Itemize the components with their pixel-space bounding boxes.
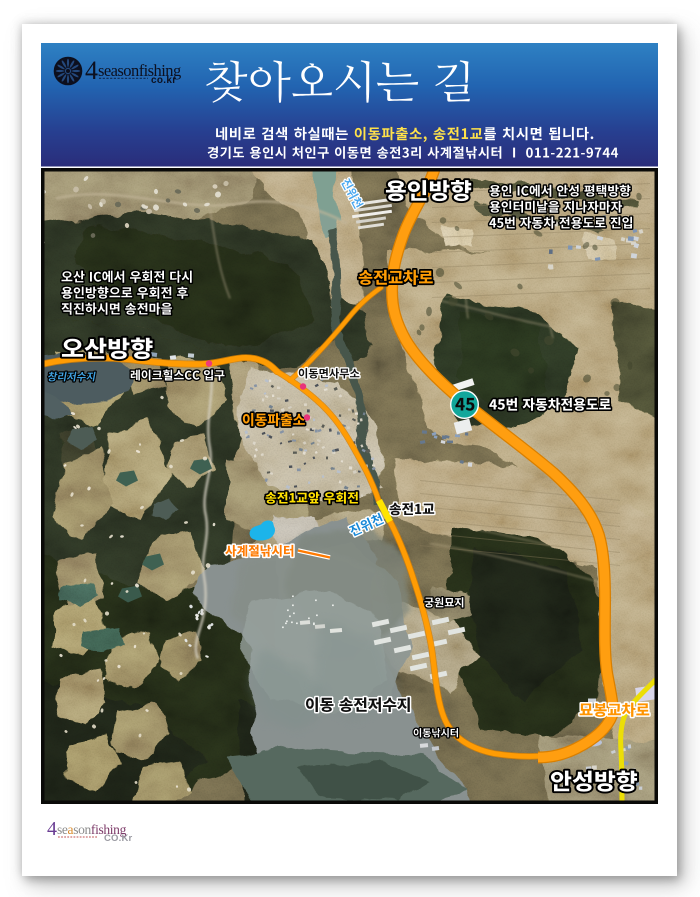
svg-text:CO.Kr: CO.Kr <box>104 833 133 844</box>
svg-text:co.kr: co.kr <box>151 75 176 86</box>
svg-text:4: 4 <box>85 56 98 85</box>
svg-text:4: 4 <box>47 818 57 840</box>
